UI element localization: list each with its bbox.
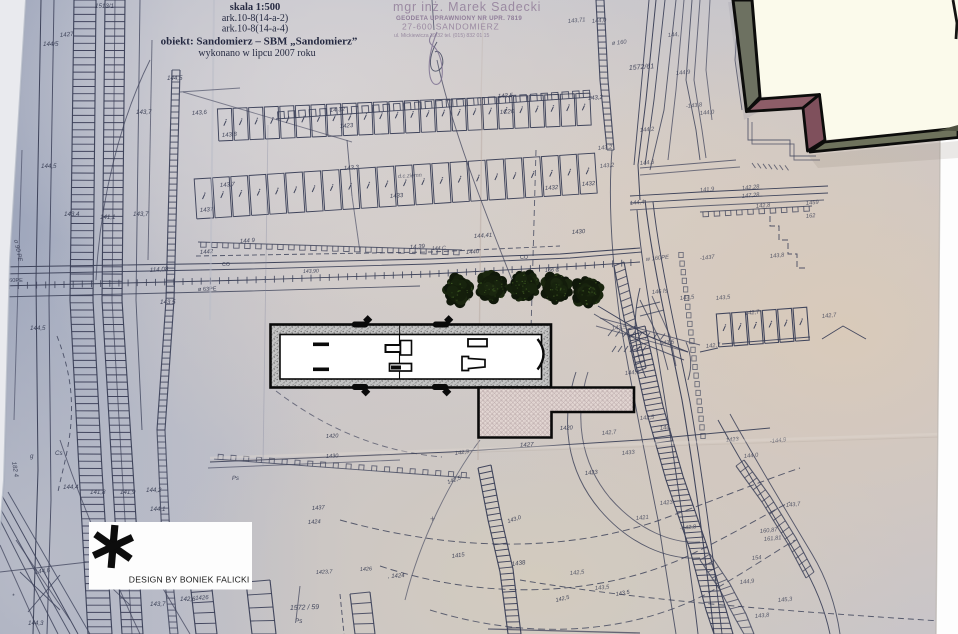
svg-text:143,8: 143,8 — [755, 612, 771, 620]
svg-text:143,2: 143,2 — [600, 162, 616, 170]
svg-text:182 4: 182 4 — [10, 461, 20, 478]
svg-text:1424: 1424 — [308, 519, 321, 526]
svg-text:143,8: 143,8 — [770, 252, 786, 260]
svg-text:144,0: 144,0 — [700, 109, 716, 117]
svg-text:Cs: Cs — [55, 450, 63, 457]
svg-text:σ 90 PE: σ 90 PE — [12, 239, 24, 263]
svg-text:1C20: 1C20 — [500, 109, 515, 116]
svg-text:144,2: 144,2 — [146, 487, 162, 494]
svg-text:+: + — [430, 514, 435, 524]
svg-text:1423,7: 1423,7 — [316, 569, 334, 576]
svg-text:1423: 1423 — [660, 500, 674, 507]
svg-text:143,8: 143,8 — [222, 132, 238, 139]
svg-text:1421: 1421 — [636, 515, 649, 522]
svg-text:142,7: 142,7 — [602, 429, 618, 437]
svg-text:1433: 1433 — [622, 450, 636, 457]
svg-text:27-600 SANDOMIERZ: 27-600 SANDOMIERZ — [402, 22, 499, 32]
svg-text:143,7: 143,7 — [133, 211, 149, 218]
svg-text:144,1: 144,1 — [150, 506, 165, 513]
svg-text:CO: CO — [520, 255, 528, 261]
svg-text:144,5: 144,5 — [41, 163, 57, 170]
svg-text:1420: 1420 — [560, 425, 574, 432]
svg-text:d.c.ziemn: d.c.ziemn — [398, 173, 422, 180]
svg-text:Ps: Ps — [232, 476, 239, 482]
svg-text:154: 154 — [752, 555, 762, 562]
svg-text:-1437: -1437 — [700, 254, 716, 262]
svg-text:144,2: 144,2 — [640, 126, 656, 134]
svg-text:143,4: 143,4 — [64, 211, 80, 218]
svg-text:ø 160: ø 160 — [612, 39, 628, 47]
svg-text:143,6: 143,6 — [192, 110, 208, 117]
svg-text:144,9: 144,9 — [676, 69, 692, 77]
svg-text:143,7: 143,7 — [150, 601, 166, 608]
svg-text:, 1424: , 1424 — [388, 573, 406, 580]
svg-text:1426: 1426 — [360, 566, 372, 573]
svg-text:1423: 1423 — [340, 123, 354, 130]
svg-text:wykonano w lipcu 2007 roku: wykonano w lipcu 2007 roku — [198, 48, 315, 59]
svg-text:143,5: 143,5 — [615, 589, 631, 597]
svg-text:1437: 1437 — [312, 505, 326, 512]
svg-text:144,5: 144,5 — [30, 325, 46, 332]
svg-text:ark.10-8(14-a-2): ark.10-8(14-a-2) — [222, 13, 288, 24]
svg-text:g: g — [30, 453, 34, 460]
svg-text:161,81: 161,81 — [764, 535, 782, 543]
svg-text:143,7: 143,7 — [136, 109, 152, 116]
svg-text:w 160PE: w 160PE — [646, 255, 670, 263]
svg-text:141,9: 141,9 — [700, 186, 716, 194]
svg-text:Ps: Ps — [295, 618, 304, 625]
svg-text:143,5: 143,5 — [498, 93, 514, 100]
svg-text:144,9: 144,9 — [740, 578, 756, 586]
svg-text:142,7: 142,7 — [745, 309, 761, 317]
svg-text:143,5: 143,5 — [716, 294, 732, 302]
svg-text:obiekt: Sandomierz – SBM „San: obiekt: Sandomierz – SBM „Sandomierz” — [161, 36, 358, 48]
svg-text:1442: 1442 — [200, 249, 214, 256]
svg-text:1432: 1432 — [545, 185, 559, 192]
svg-text:*: * — [12, 593, 15, 600]
svg-text:145,3: 145,3 — [778, 596, 794, 604]
svg-text:1433: 1433 — [390, 193, 404, 200]
svg-text:14,39: 14,39 — [410, 244, 426, 251]
svg-text:ark.10-8(14-a-4): ark.10-8(14-a-4) — [222, 24, 288, 35]
svg-text:143,90: 143,90 — [303, 268, 319, 275]
svg-text:1420: 1420 — [326, 433, 340, 440]
svg-text:141,9: 141,9 — [120, 489, 136, 496]
svg-text:1427: 1427 — [60, 31, 75, 39]
svg-text:143,2: 143,2 — [598, 144, 614, 152]
svg-text:162: 162 — [806, 213, 817, 220]
svg-text:DESIGN BY BONIEK FALICKI: DESIGN BY BONIEK FALICKI — [129, 575, 250, 585]
svg-text:143 5: 143 5 — [160, 299, 176, 306]
svg-text:144/5: 144/5 — [43, 41, 59, 48]
svg-text:144,41: 144,41 — [474, 233, 493, 240]
svg-text:144,: 144, — [668, 32, 680, 39]
svg-text:-143,8: -143,8 — [686, 102, 704, 110]
svg-text:142,5: 142,5 — [570, 569, 586, 577]
svg-text:144,5: 144,5 — [167, 75, 183, 82]
svg-text:1572 / 59: 1572 / 59 — [290, 604, 320, 612]
svg-text:141,8: 141,8 — [90, 489, 106, 496]
svg-text:skala 1:500: skala 1:500 — [230, 2, 280, 13]
svg-text:1430: 1430 — [572, 229, 586, 236]
svg-text:143,0: 143,0 — [507, 515, 523, 525]
svg-text:ø 63PE: ø 63PE — [198, 286, 217, 293]
svg-text:1432: 1432 — [582, 181, 596, 188]
svg-text:1572/61: 1572/61 — [629, 63, 655, 72]
svg-text:143,7: 143,7 — [220, 182, 236, 189]
svg-text:160,87: 160,87 — [760, 527, 779, 535]
svg-text:1415: 1415 — [451, 552, 465, 560]
svg-text:142,7: 142,7 — [706, 342, 722, 350]
svg-text:144,6: 144,6 — [640, 159, 656, 167]
svg-text:143,7: 143,7 — [786, 501, 802, 509]
svg-text:144,0: 144,0 — [744, 452, 760, 460]
svg-text:143,5: 143,5 — [595, 584, 611, 592]
svg-text:1438: 1438 — [511, 559, 526, 568]
svg-text:, 1426: , 1426 — [192, 595, 210, 602]
svg-text:114,08: 114,08 — [150, 266, 169, 274]
svg-text:1513/1: 1513/1 — [95, 3, 114, 10]
svg-text:1423: 1423 — [585, 470, 599, 477]
svg-text:CO: CO — [222, 262, 230, 268]
svg-text:142,7: 142,7 — [822, 312, 838, 320]
svg-text:1430: 1430 — [326, 453, 340, 460]
svg-text:142,5: 142,5 — [555, 595, 571, 604]
svg-text:143,71: 143,71 — [568, 17, 586, 25]
svg-text:mgr inż. Marek Sadecki: mgr inż. Marek Sadecki — [393, 0, 541, 14]
svg-text:142,28: 142,28 — [742, 184, 761, 192]
svg-text:14 32: 14 32 — [330, 107, 346, 114]
svg-text:ul. Mickiewicza 39/32 tel. (0: ul. Mickiewicza 39/32 tel. (015) 832 01 … — [394, 33, 490, 39]
